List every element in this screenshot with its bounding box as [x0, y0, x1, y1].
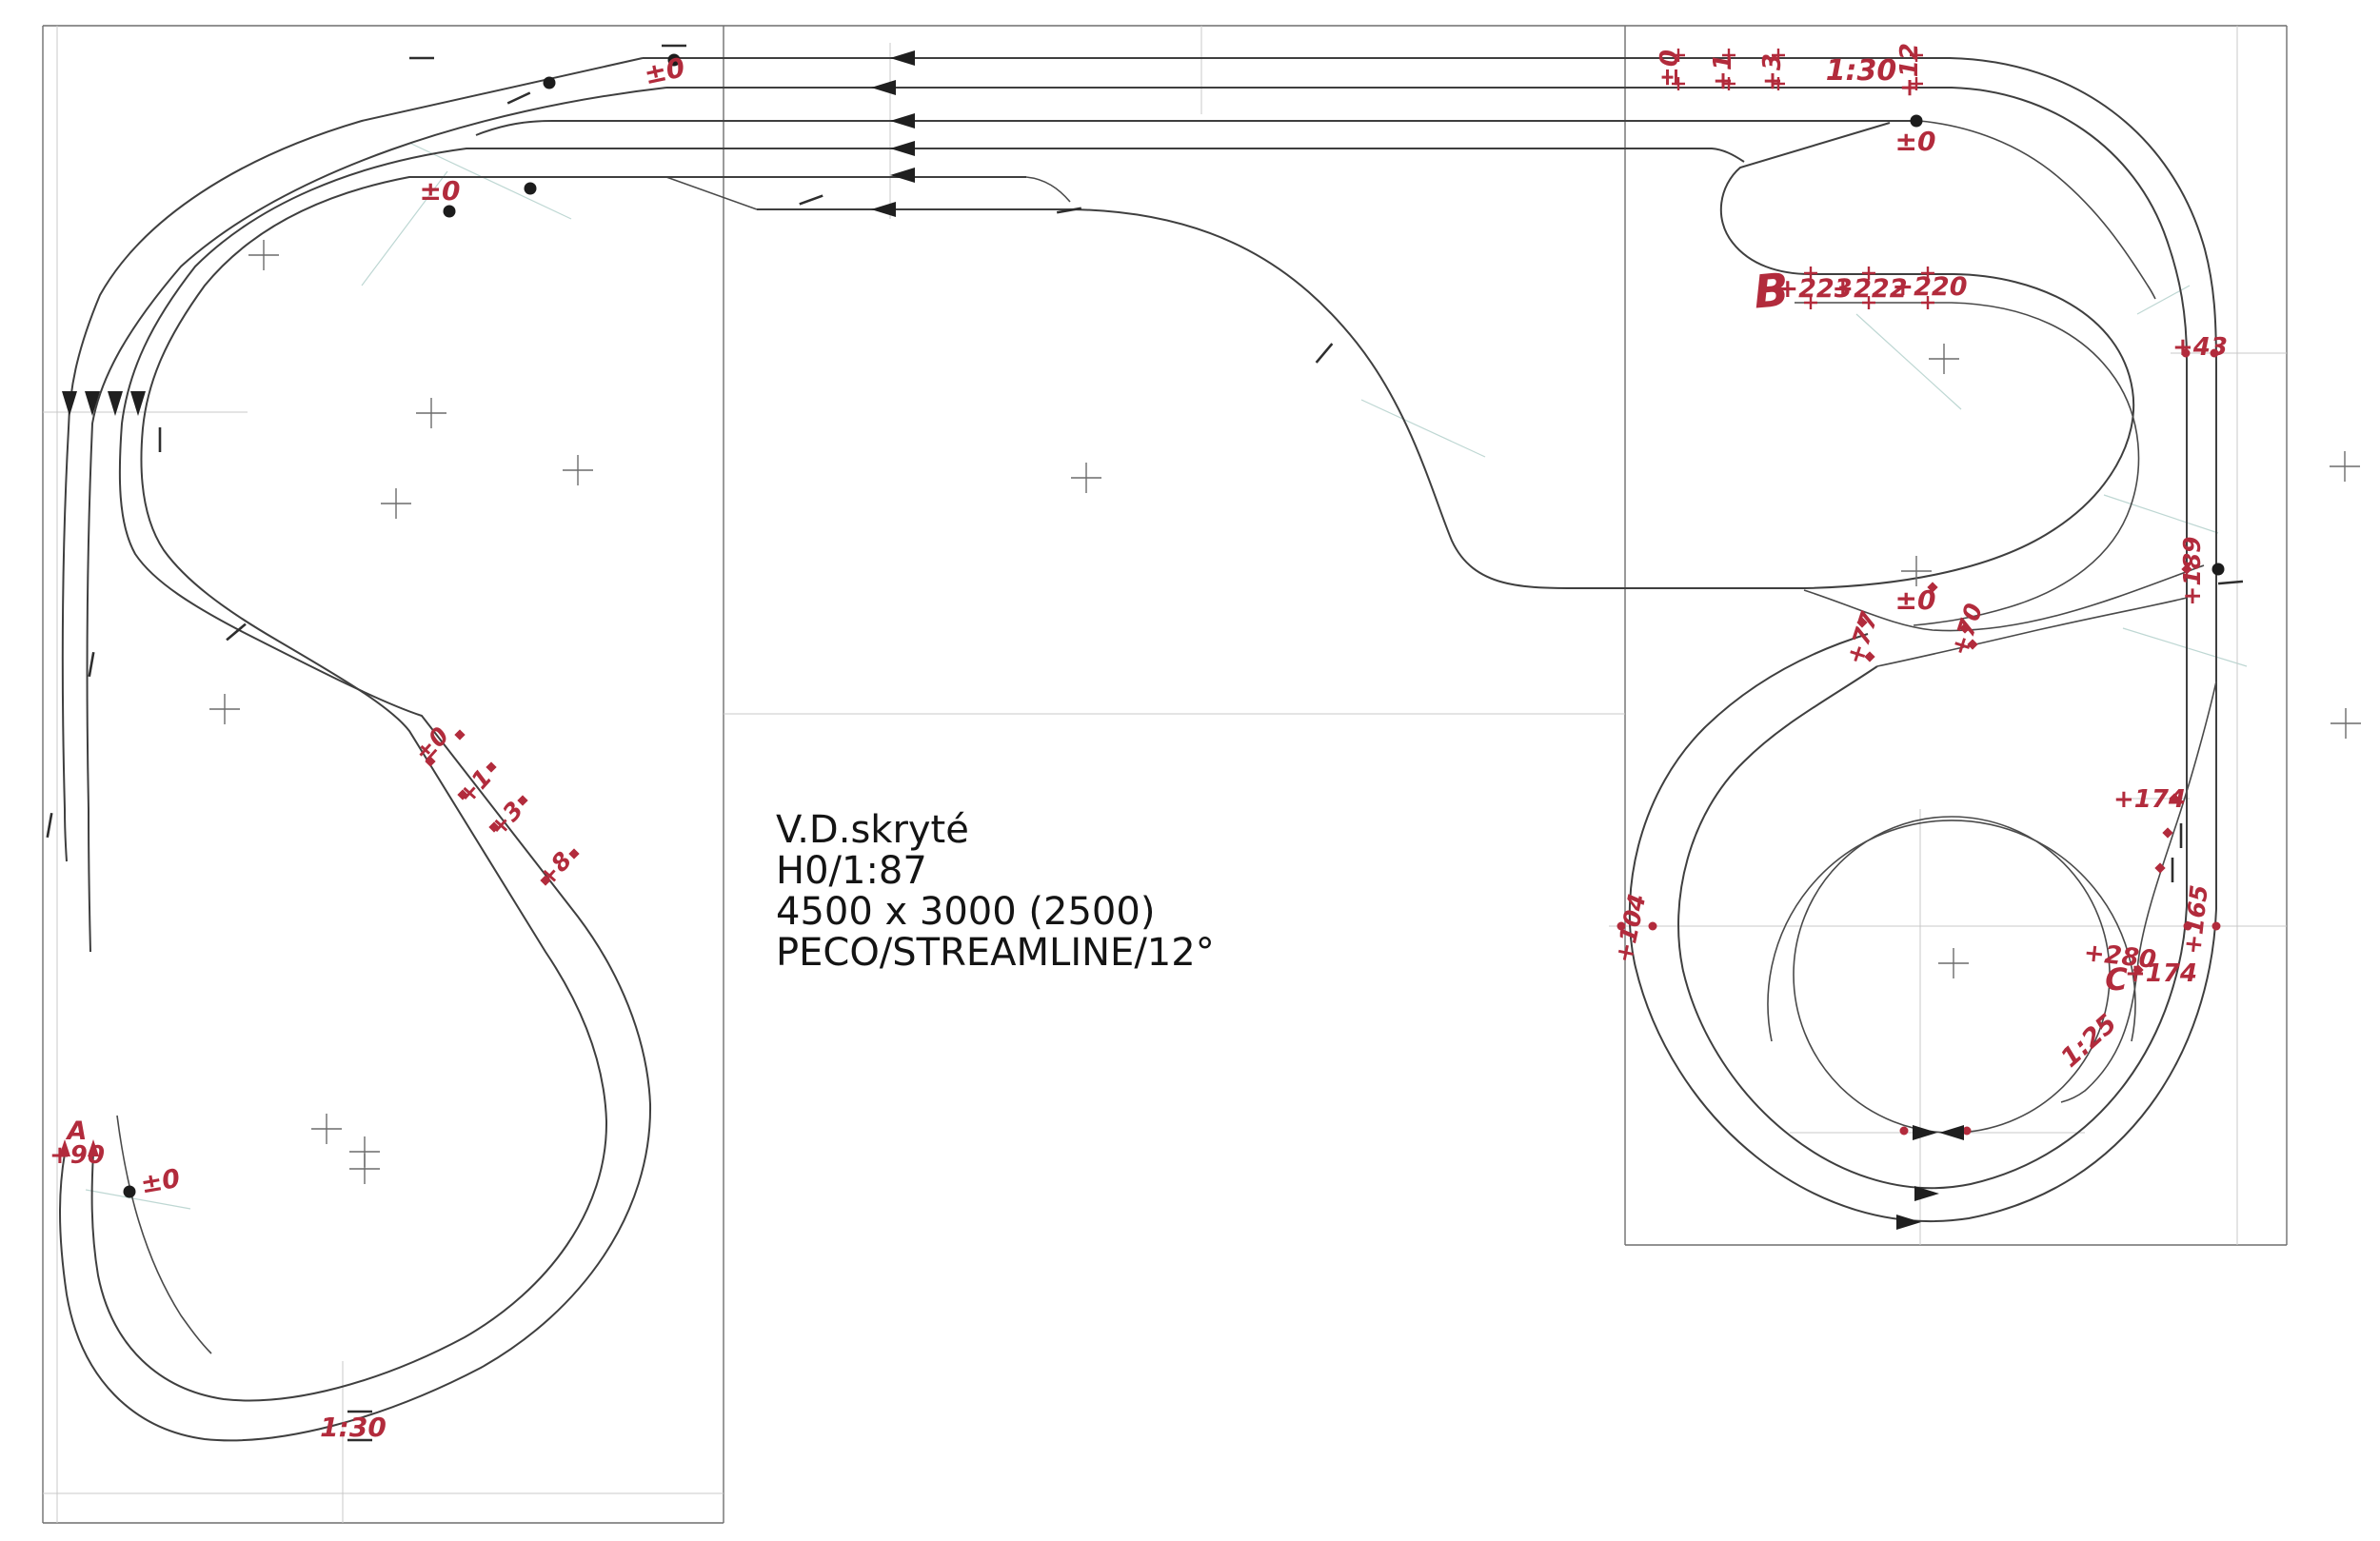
connection-dot-marker	[124, 1186, 136, 1198]
elevation-label: 1:30	[1826, 54, 1897, 88]
elevation-label: +43	[2172, 333, 2228, 362]
elevation-label: +12	[1895, 43, 1924, 98]
title-line-4: PECO/STREAMLINE/12°	[776, 931, 1215, 975]
title-line-2: H0/1:87	[776, 849, 927, 893]
elevation-label: +3	[1758, 53, 1787, 91]
track-plan-canvas: ±0±0±0+1+31:30+12±0B+223+222+220+43±0+77…	[0, 0, 2380, 1541]
connection-dot-marker	[2212, 563, 2225, 576]
elevation-label: ±0	[1656, 49, 1684, 88]
red-dot-marker	[2212, 922, 2221, 931]
elevation-label: +220	[1893, 272, 1968, 302]
elevation-label: ±0	[1895, 584, 1936, 616]
scanned-track-plan: ±0±0±0+1+31:30+12±0B+223+222+220+43±0+77…	[0, 0, 2380, 1541]
elevation-label: +90	[50, 1141, 105, 1170]
elevation-label: ±0	[420, 175, 461, 207]
paper-background	[0, 0, 2380, 1541]
elevation-label: ±0	[1895, 126, 1936, 157]
connection-dot-marker	[444, 206, 456, 218]
red-dot-marker	[1900, 1127, 1909, 1136]
connection-dot-marker	[544, 77, 556, 89]
elevation-label: +1	[1709, 53, 1737, 91]
elevation-label: +174	[2113, 785, 2186, 814]
red-dot-marker	[1649, 922, 1657, 931]
elevation-label: +189	[2178, 536, 2206, 605]
elevation-label: +174	[2125, 959, 2197, 988]
connection-dot-marker	[525, 183, 537, 195]
title-line-1: V.D.skryté	[776, 808, 969, 852]
title-line-3: 4500 x 3000 (2500)	[776, 890, 1155, 934]
elevation-label: 1:30	[320, 1412, 387, 1443]
